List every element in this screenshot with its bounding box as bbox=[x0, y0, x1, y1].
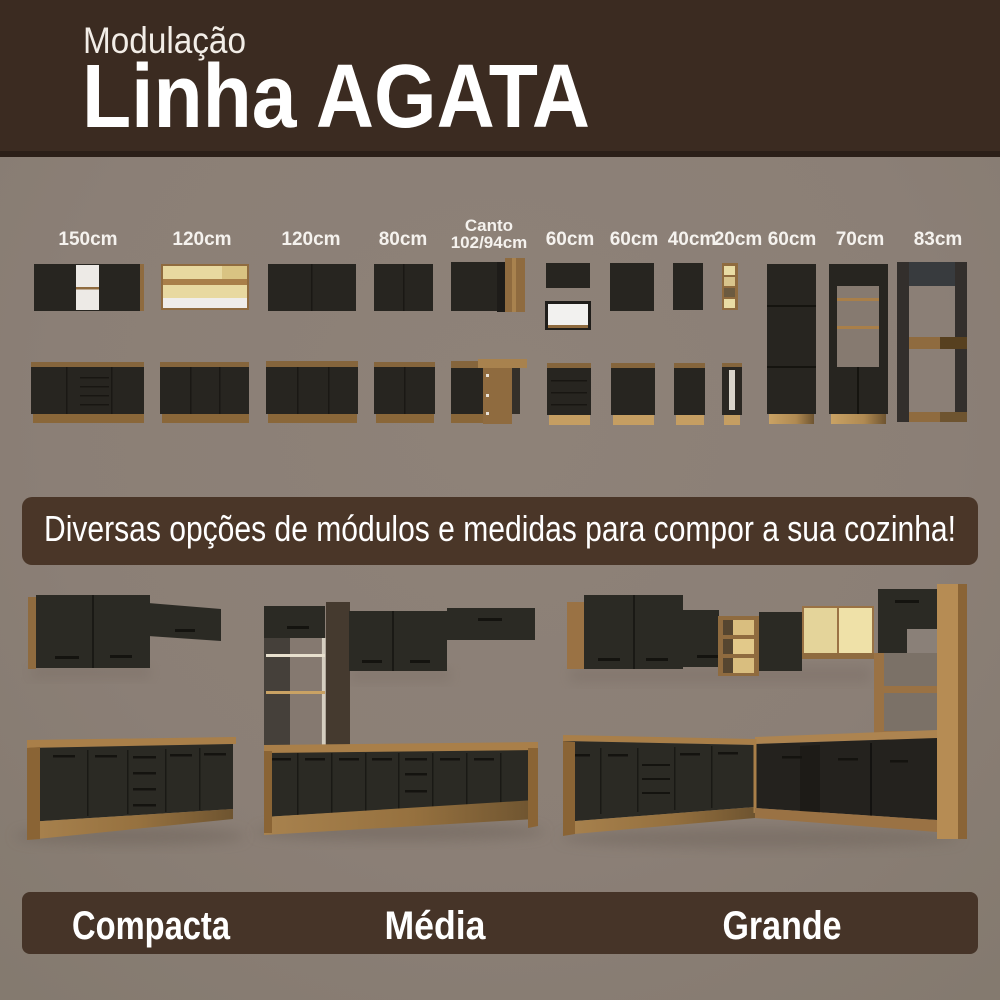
svg-text:Compacta: Compacta bbox=[72, 904, 231, 948]
svg-text:Linha AGATA: Linha AGATA bbox=[82, 47, 590, 147]
svg-text:60cm: 60cm bbox=[610, 229, 659, 250]
svg-text:40cm: 40cm bbox=[668, 229, 717, 250]
svg-text:20cm: 20cm bbox=[714, 229, 763, 250]
svg-text:102/94cm: 102/94cm bbox=[451, 233, 528, 252]
svg-text:Grande: Grande bbox=[723, 904, 842, 948]
svg-text:150cm: 150cm bbox=[58, 229, 117, 250]
svg-text:Diversas opções de módulos e m: Diversas opções de módulos e medidas par… bbox=[44, 508, 956, 549]
svg-text:80cm: 80cm bbox=[379, 229, 428, 250]
svg-text:Média: Média bbox=[385, 904, 487, 948]
svg-text:60cm: 60cm bbox=[768, 229, 817, 250]
svg-text:60cm: 60cm bbox=[546, 229, 595, 250]
svg-text:70cm: 70cm bbox=[836, 229, 885, 250]
svg-text:83cm: 83cm bbox=[914, 229, 963, 250]
svg-text:120cm: 120cm bbox=[172, 229, 231, 250]
svg-text:120cm: 120cm bbox=[281, 229, 340, 250]
